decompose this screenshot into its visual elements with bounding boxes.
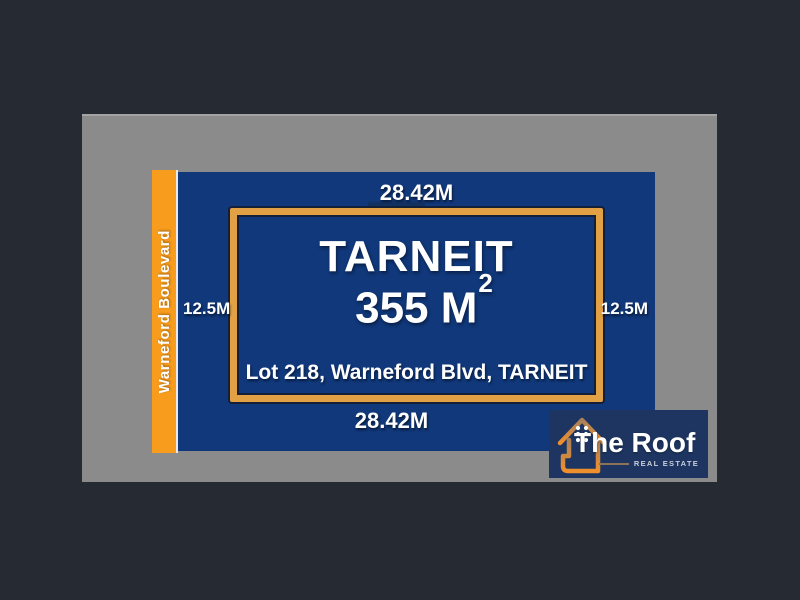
agency-logo: The Roof REAL ESTATE [549,410,708,478]
tagline-divider-line [599,463,629,465]
logo-tagline-text: REAL ESTATE [634,459,699,468]
logo-tagline-row: REAL ESTATE [599,459,699,468]
dimension-right-label: 12.5M [601,299,648,319]
road-name-label: Warneford Boulevard [156,230,173,393]
land-flyer-canvas: Warneford Boulevard 28.42M TARNEIT 355 M… [0,0,800,600]
area-superscript: 2 [478,268,492,298]
lot-highlight-frame: TARNEIT 355 M2 Lot 218, Warneford Blvd, … [230,208,603,402]
logo-brand-text: The Roof [574,429,695,457]
dimension-left-label: 12.5M [183,299,230,319]
lot-address: Lot 218, Warneford Blvd, TARNEIT [246,362,588,383]
area-number: 355 M [355,284,477,333]
lot-area-value: 355 M2 [355,285,492,331]
